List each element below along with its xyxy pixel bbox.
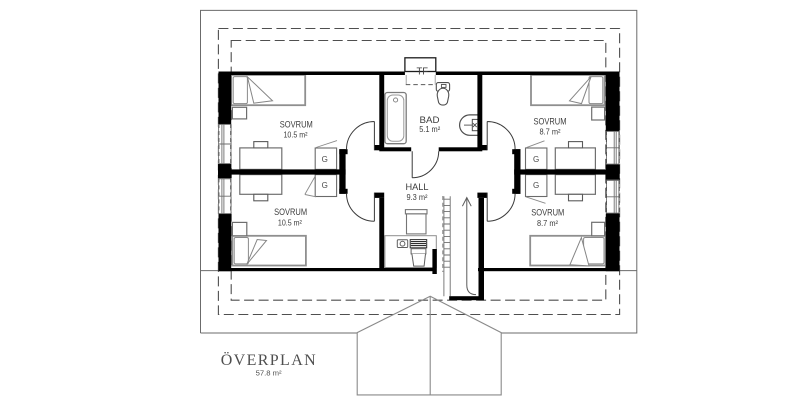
svg-text:G: G	[322, 155, 328, 164]
svg-text:5.1 m²: 5.1 m²	[419, 125, 440, 134]
svg-text:BAD: BAD	[420, 115, 441, 125]
svg-text:8.7 m²: 8.7 m²	[540, 127, 561, 136]
svg-text:10.5 m²: 10.5 m²	[284, 130, 308, 139]
svg-text:8.7 m²: 8.7 m²	[537, 219, 558, 228]
svg-text:10.5 m²: 10.5 m²	[278, 219, 302, 228]
svg-text:SOVRUM: SOVRUM	[531, 208, 564, 218]
svg-text:HALL: HALL	[406, 182, 429, 192]
svg-text:G: G	[533, 155, 539, 164]
svg-text:TF: TF	[417, 66, 429, 77]
svg-text:9.3 m²: 9.3 m²	[407, 193, 428, 202]
svg-text:57.8 m²: 57.8 m²	[256, 369, 283, 378]
svg-text:G: G	[533, 181, 539, 190]
svg-text:SOVRUM: SOVRUM	[534, 116, 567, 126]
svg-text:SOVRUM: SOVRUM	[280, 119, 313, 129]
svg-text:G: G	[322, 181, 328, 190]
svg-text:SOVRUM: SOVRUM	[274, 207, 307, 217]
